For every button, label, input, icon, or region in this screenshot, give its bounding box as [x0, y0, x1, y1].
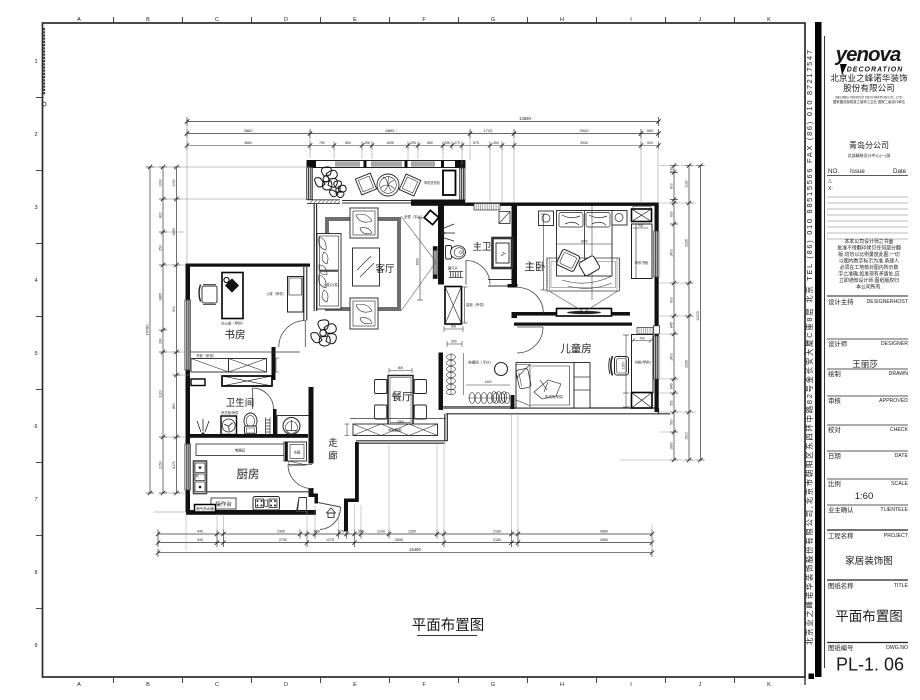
svg-text:8: 8	[34, 570, 37, 576]
svg-text:2180: 2180	[493, 530, 501, 534]
svg-text:DATE: DATE	[895, 453, 909, 459]
svg-text:850: 850	[345, 141, 351, 145]
svg-text:800: 800	[670, 183, 674, 189]
svg-text:工程名称: 工程名称	[828, 531, 854, 540]
svg-text:900: 900	[172, 306, 176, 312]
svg-text:孩子床(甲供): 孩子床(甲供)	[545, 394, 564, 399]
svg-text:字之准确,如发现有矛盾处,应: 字之准确,如发现有矛盾处,应	[838, 271, 900, 278]
svg-text:A: A	[77, 17, 81, 23]
svg-text:3120: 3120	[159, 390, 163, 398]
svg-text:日期: 日期	[828, 452, 841, 460]
svg-text:B: B	[146, 17, 150, 23]
svg-text:850: 850	[172, 403, 176, 409]
svg-text:K: K	[767, 17, 771, 23]
svg-text:4560: 4560	[600, 530, 608, 534]
svg-text:2700: 2700	[279, 538, 287, 542]
svg-text:2150: 2150	[159, 461, 163, 469]
svg-text:1400: 1400	[670, 249, 674, 257]
svg-text:办公桌（甲供）: 办公桌（甲供）	[221, 321, 245, 326]
svg-text:甲供鞋柜: 甲供鞋柜	[388, 428, 402, 433]
svg-text:卫生间: 卫生间	[226, 397, 255, 409]
svg-text:700: 700	[638, 224, 644, 228]
svg-text:△: △	[828, 178, 832, 184]
svg-text:TLIENTELE: TLIENTELE	[880, 507, 908, 513]
svg-text:PROJECT: PROJECT	[884, 533, 909, 539]
svg-text:2695: 2695	[395, 538, 403, 542]
svg-text:G: G	[491, 17, 495, 23]
svg-text:立即通知设计师.图纸版权归: 立即通知设计师.图纸版权归	[839, 277, 899, 284]
svg-text:3880: 3880	[244, 128, 254, 133]
svg-text:北京业之峰诺华装饰: 北京业之峰诺华装饰	[830, 72, 908, 83]
svg-text:H: H	[560, 17, 564, 23]
svg-text:940: 940	[197, 538, 203, 542]
svg-text:3940: 3940	[580, 141, 588, 145]
svg-text:2336: 2336	[685, 360, 689, 368]
svg-text:书柜（甲供）: 书柜（甲供）	[196, 353, 216, 358]
svg-text:1910: 1910	[685, 432, 689, 440]
svg-text:1400: 1400	[670, 353, 674, 361]
svg-text:845: 845	[670, 383, 674, 389]
svg-text:J: J	[699, 682, 702, 688]
svg-text:SCALE: SCALE	[891, 481, 909, 487]
svg-text:沙发(沙发): 沙发(沙发)	[323, 282, 339, 287]
svg-text:必须在工地核对图内所示数: 必须在工地核对图内所示数	[840, 264, 899, 271]
svg-text:2360: 2360	[277, 530, 285, 534]
svg-text:E: E	[353, 682, 357, 688]
svg-text:1275: 1275	[326, 538, 334, 542]
svg-text:E: E	[353, 17, 357, 23]
svg-text:14590: 14590	[519, 116, 531, 121]
svg-text:主卫: 主卫	[472, 241, 492, 253]
svg-text:NO.: NO.	[828, 168, 839, 175]
svg-text:9: 9	[34, 643, 37, 649]
svg-text:儿童房: 儿童房	[560, 342, 592, 355]
svg-text:630: 630	[670, 211, 674, 217]
svg-text:1: 1	[34, 59, 37, 65]
svg-text:本本公司设计师之书面: 本本公司设计师之书面	[845, 238, 894, 245]
svg-text:餐厅: 餐厅	[392, 390, 413, 403]
svg-text:975: 975	[338, 530, 344, 534]
svg-text:图纸名称: 图纸名称	[828, 581, 854, 590]
svg-text:股份有限公司: 股份有限公司	[843, 82, 895, 93]
svg-text:500: 500	[647, 141, 653, 145]
svg-text:250: 250	[159, 245, 163, 251]
svg-text:D: D	[284, 17, 288, 23]
svg-text:客厅: 客厅	[375, 263, 395, 275]
svg-text:yenova: yenova	[835, 43, 901, 66]
svg-text:廊: 廊	[328, 450, 338, 462]
svg-text:版.切勿以比例量度此图,一切: 版.切勿以比例量度此图,一切	[838, 251, 900, 258]
svg-text:批准不得翻印拷贝任何部分翻: 批准不得翻印拷贝任何部分翻	[837, 245, 901, 252]
svg-text:主卧: 主卧	[525, 260, 546, 273]
svg-text:C: C	[215, 17, 219, 23]
svg-text:书柜(甲供): 书柜(甲供)	[634, 360, 650, 365]
svg-text:平面布置图: 平面布置图	[835, 609, 903, 624]
svg-text:4: 4	[34, 278, 37, 284]
svg-text:1400: 1400	[484, 380, 491, 384]
svg-text:7: 7	[34, 497, 37, 503]
svg-text:2000: 2000	[397, 420, 404, 424]
svg-text:700: 700	[639, 337, 645, 341]
svg-text:D: D	[284, 682, 288, 688]
svg-text:550: 550	[670, 400, 674, 406]
svg-text:沙发（甲供）: 沙发（甲供）	[266, 291, 286, 296]
svg-text:DESIGNERHOST: DESIGNERHOST	[866, 299, 908, 305]
svg-text:BEIJING YENOVO DECORATION CO.,: BEIJING YENOVO DECORATION CO., LTD	[836, 96, 903, 100]
svg-text:Date: Date	[893, 168, 907, 175]
svg-text:比例: 比例	[828, 479, 841, 488]
svg-text:875: 875	[473, 141, 479, 145]
svg-text:270: 270	[454, 141, 460, 145]
svg-text:王丽莎: 王丽莎	[852, 359, 878, 369]
svg-text:295: 295	[364, 141, 370, 145]
svg-text:绘制: 绘制	[828, 369, 841, 378]
svg-text:3940: 3940	[580, 128, 590, 133]
svg-text:家居装饰图: 家居装饰图	[845, 555, 893, 567]
svg-text:230: 230	[670, 167, 674, 173]
svg-text:900: 900	[670, 297, 674, 303]
svg-text:以图内数字标示为准.承建人: 以图内数字标示为准.承建人	[839, 258, 899, 265]
svg-text:1095: 1095	[386, 141, 394, 145]
svg-text:书房: 书房	[225, 328, 246, 341]
svg-text:J: J	[699, 17, 702, 23]
svg-text:B: B	[146, 682, 150, 688]
svg-text:C: C	[215, 682, 219, 688]
svg-text:16780: 16780	[145, 324, 150, 336]
svg-text:4560: 4560	[600, 538, 608, 542]
svg-text:800: 800	[639, 202, 645, 206]
svg-text:DWG.NO: DWG.NO	[886, 645, 908, 651]
svg-text:6: 6	[34, 424, 37, 430]
svg-text:3880: 3880	[244, 141, 252, 145]
svg-text:校对: 校对	[828, 425, 841, 434]
svg-text:图纸编号: 图纸编号	[828, 643, 854, 652]
svg-text:1030: 1030	[172, 179, 176, 187]
svg-text:PL-1. 06: PL-1. 06	[836, 655, 904, 675]
svg-text:900: 900	[451, 325, 457, 329]
svg-text:衣帽间（平仪）: 衣帽间（平仪）	[468, 360, 493, 365]
svg-text:北京业之峰诺华装饰股份有限公司,北京市朝阳区东四环中路82号: 北京业之峰诺华装饰股份有限公司,北京市朝阳区东四环中路82号金长安大厦C座8层 …	[805, 50, 814, 645]
svg-text:甲供书柜: 甲供书柜	[635, 260, 649, 265]
svg-text:1350: 1350	[408, 530, 416, 534]
svg-text:G: G	[491, 682, 495, 688]
svg-text:A: A	[77, 682, 81, 688]
svg-text:820: 820	[159, 212, 163, 218]
svg-text:15490: 15490	[409, 547, 421, 552]
svg-text:DRAWN: DRAWN	[889, 371, 909, 377]
svg-text:X:: X:	[828, 186, 833, 192]
svg-text:TITLE: TITLE	[894, 583, 909, 589]
svg-text:1800: 1800	[580, 240, 587, 244]
svg-text:燃气热水器: 燃气热水器	[196, 506, 214, 511]
svg-text:厨房: 厨房	[237, 468, 260, 481]
svg-text:845: 845	[670, 322, 674, 328]
svg-text:1690: 1690	[670, 442, 674, 450]
svg-text:1720: 1720	[484, 128, 494, 133]
svg-text:暖气片: 暖气片	[448, 266, 458, 271]
svg-text:2180: 2180	[493, 538, 501, 542]
svg-text:350: 350	[493, 141, 499, 145]
svg-text:DESIGNER: DESIGNER	[881, 341, 908, 347]
svg-text:业主确认: 业主确认	[828, 505, 854, 514]
svg-text:2: 2	[34, 132, 37, 138]
svg-text:本公司所有.: 本公司所有.	[856, 284, 882, 291]
svg-text:550: 550	[670, 419, 674, 425]
svg-text:走: 走	[328, 438, 338, 449]
svg-text:10205: 10205	[696, 311, 700, 321]
svg-text:1130: 1130	[685, 180, 689, 187]
svg-text:总部精装设计中心(一)部: 总部精装设计中心(一)部	[848, 152, 891, 158]
svg-text:K: K	[767, 682, 771, 688]
svg-text:940: 940	[197, 530, 203, 534]
svg-text:APPROVED: APPROVED	[879, 398, 908, 404]
svg-text:755: 755	[444, 141, 450, 145]
svg-text:吊式柜/甲供: 吊式柜/甲供	[221, 410, 239, 415]
svg-text:800: 800	[398, 366, 404, 370]
svg-text:500: 500	[647, 128, 654, 133]
svg-text:4170: 4170	[172, 461, 176, 469]
svg-text:H: H	[560, 682, 564, 688]
svg-text:1890: 1890	[416, 258, 420, 265]
svg-text:600: 600	[451, 340, 457, 344]
svg-text:6890: 6890	[386, 128, 396, 133]
svg-text:冰箱: 冰箱	[294, 450, 301, 455]
svg-text:青岛分公司: 青岛分公司	[849, 140, 889, 150]
svg-text:240: 240	[159, 338, 163, 344]
svg-text:3: 3	[34, 205, 37, 211]
svg-text:操作台: 操作台	[215, 500, 232, 508]
svg-text:高柜（甲供）: 高柜（甲供）	[466, 302, 486, 307]
svg-text:审核: 审核	[828, 396, 841, 405]
svg-text:5: 5	[34, 351, 37, 357]
svg-text:国家建设部批准之装饰工企业 国家二级设计单位: 国家建设部批准之装饰工企业 国家二级设计单位	[833, 99, 906, 104]
svg-text:850: 850	[427, 141, 433, 145]
svg-text:甲供洗衣机: 甲供洗衣机	[424, 180, 441, 185]
svg-text:Issue: Issue	[850, 168, 865, 175]
svg-text:设计师: 设计师	[828, 339, 848, 348]
svg-text:2336: 2336	[685, 239, 689, 247]
svg-text:平面布置图: 平面布置图	[412, 617, 485, 634]
svg-text:1030: 1030	[159, 179, 163, 187]
svg-text:1100: 1100	[377, 530, 385, 534]
svg-text:295: 295	[410, 141, 416, 145]
svg-text:2150: 2150	[622, 362, 626, 369]
svg-text:1865: 1865	[159, 293, 163, 301]
svg-text:1:60: 1:60	[855, 491, 874, 502]
svg-text:设计主持: 设计主持	[828, 297, 854, 306]
svg-text:电器区: 电器区	[235, 448, 246, 453]
svg-text:CHECK: CHECK	[890, 427, 909, 433]
svg-text:750: 750	[319, 141, 325, 145]
